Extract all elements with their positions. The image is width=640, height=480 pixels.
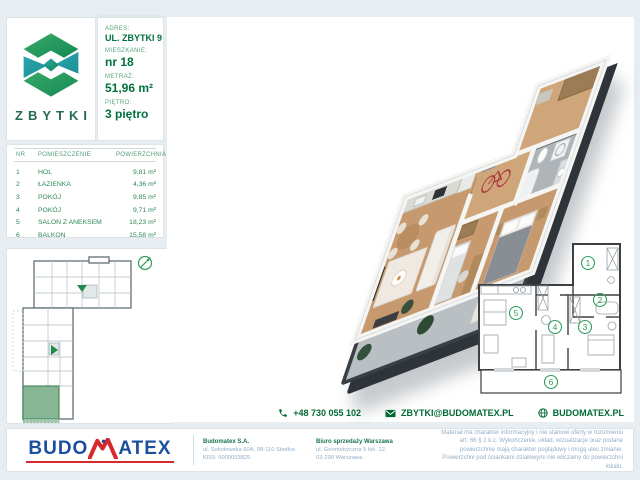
room-name: ŁAZIENKA — [38, 181, 116, 188]
highlighted-unit — [23, 386, 59, 419]
header-name: POMIESZCZENIE — [38, 152, 116, 158]
room-number: 2 — [14, 181, 38, 188]
plan-marker-5: 5 — [514, 308, 519, 318]
zbytki-hexagon-logo-icon — [15, 28, 87, 102]
company-address: ul. Sokołowska 60A, 08-110 Siedlce — [203, 446, 307, 454]
floor-value: 3 piętro — [105, 107, 163, 121]
room-area: 9,81 m² — [116, 169, 156, 176]
office-name: Biuro sprzedaży Warszawa — [316, 439, 420, 445]
rooms-table-body: 1 HOL 9,81 m² 2 ŁAZIENKA 4,36 m² 3 POKÓJ… — [14, 166, 156, 242]
key-plan-drawing — [7, 249, 171, 423]
area-label: METRAŻ: — [105, 74, 163, 80]
address-label: ADRES: — [105, 26, 163, 32]
room-name: SALON Z ANEKSEM — [38, 219, 116, 226]
sales-office-block: Biuro sprzedaży Warszawa ul. Geometryczn… — [307, 439, 420, 462]
building-key-plan — [6, 248, 172, 424]
legal-disclaimer: Materiał ma charakter informacyjny i nie… — [420, 429, 633, 472]
logo-text-budo: BUDO — [28, 439, 88, 459]
room-number: 4 — [14, 207, 38, 214]
rooms-table: NR POMIESZCZENIE POWIERZCHNIA 1 HOL 9,81… — [6, 144, 164, 238]
table-row: 4 POKÓJ 9,71 m² — [14, 204, 156, 217]
phone-number: +48 730 055 102 — [293, 408, 361, 418]
company-name: Budomatex S.A. — [203, 439, 307, 445]
rooms-table-header: NR POMIESZCZENIE POWIERZCHNIA — [14, 148, 156, 162]
website-link[interactable]: BUDOMATEX.PL — [538, 408, 624, 418]
table-row: 6 BALKON 15,58 m² — [14, 229, 156, 242]
globe-icon — [538, 408, 548, 418]
table-row: 1 HOL 9,81 m² — [14, 166, 156, 179]
logo-text-atex: ATEX — [118, 439, 171, 459]
table-row: 3 POKÓJ 9,85 m² — [14, 191, 156, 204]
apartment-info-panel: ADRES: UL. ZBYTKI 9 MIESZKANIE: nr 18 ME… — [97, 17, 164, 141]
room-area: 15,58 m² — [116, 232, 156, 239]
room-area: 18,23 m² — [116, 219, 156, 226]
room-area: 9,85 m² — [116, 194, 156, 201]
plan-marker-2: 2 — [598, 295, 603, 305]
plan-marker-6: 6 — [549, 377, 554, 387]
phone-link[interactable]: +48 730 055 102 — [278, 408, 361, 418]
room-number: 6 — [14, 232, 38, 239]
table-row: 2 ŁAZIENKA 4,36 m² — [14, 179, 156, 192]
room-area: 9,71 m² — [116, 207, 156, 214]
plan-marker-4: 4 — [553, 322, 558, 332]
apartment-number: nr 18 — [105, 55, 163, 69]
brand-name: ZBYTKI — [7, 108, 95, 123]
company-krs: KRS: 0000093825 — [203, 454, 307, 462]
plan-marker-1: 1 — [586, 258, 591, 268]
website-address: BUDOMATEX.PL — [553, 408, 624, 418]
logo-m-icon — [88, 438, 118, 459]
brand-card: ZBYTKI — [6, 17, 96, 141]
main-canvas: 1 2 3 4 5 6 +48 730 055 102 ZBYTKI@BUDOM… — [167, 17, 634, 422]
apartment-2d-plan: 1 2 3 4 5 6 — [476, 240, 626, 398]
room-name: POKÓJ — [38, 207, 116, 214]
room-number: 3 — [14, 194, 38, 201]
budomatex-logo: BUDO ATEX — [7, 438, 193, 463]
room-name: BALKON — [38, 232, 116, 239]
room-number: 1 — [14, 169, 38, 176]
contact-bar: +48 730 055 102 ZBYTKI@BUDOMATEX.PL BUDO… — [278, 408, 624, 418]
plan-marker-3: 3 — [583, 322, 588, 332]
floor-label: PIĘTRO: — [105, 100, 163, 106]
office-address2: 03-290 Warszawa — [316, 454, 420, 462]
envelope-icon — [385, 409, 396, 418]
email-link[interactable]: ZBYTKI@BUDOMATEX.PL — [385, 408, 514, 418]
room-name: HOL — [38, 169, 116, 176]
footer: BUDO ATEX Budomatex S.A. ul. Sokołowska … — [6, 428, 634, 472]
room-area: 4,36 m² — [116, 181, 156, 188]
apartment-label: MIESZKANIE: — [105, 48, 163, 54]
room-number: 5 — [14, 219, 38, 226]
header-area: POWIERZCHNIA — [116, 152, 156, 158]
compass-icon — [139, 257, 152, 270]
header-nr: NR — [14, 152, 38, 158]
office-address1: ul. Geometryczna 5 lok. 12, — [316, 446, 420, 454]
company-block: Budomatex S.A. ul. Sokołowska 60A, 08-11… — [194, 439, 307, 462]
table-row: 5 SALON Z ANEKSEM 18,23 m² — [14, 216, 156, 229]
email-address: ZBYTKI@BUDOMATEX.PL — [401, 408, 514, 418]
room-name: POKÓJ — [38, 194, 116, 201]
address-value: UL. ZBYTKI 9 — [105, 33, 163, 43]
area-value: 51,96 m² — [105, 81, 163, 95]
phone-icon — [278, 408, 288, 418]
